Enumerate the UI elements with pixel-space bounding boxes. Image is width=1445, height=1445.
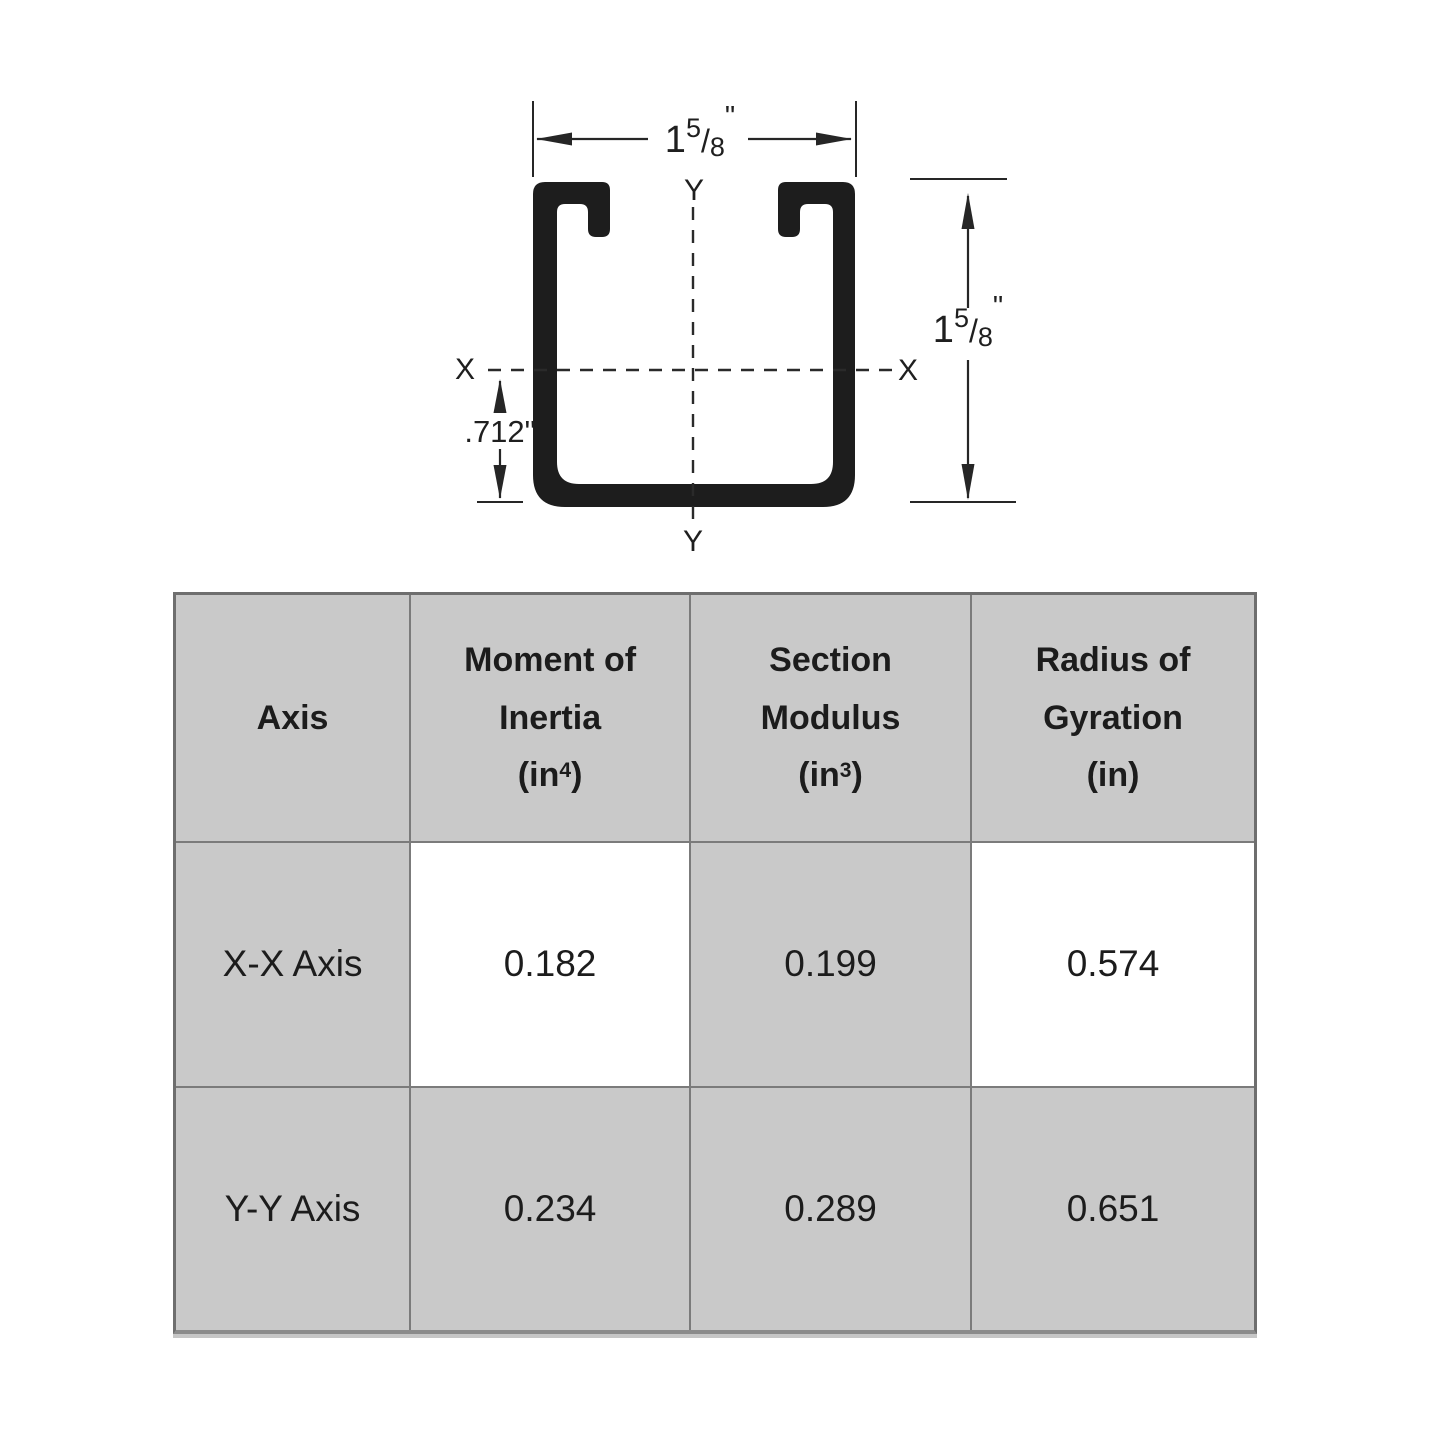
height-arrow-down-icon <box>962 464 975 500</box>
header-line: Gyration <box>1043 690 1183 747</box>
height-arrow-up-icon <box>962 193 975 229</box>
header-unit: (in) <box>1087 747 1140 804</box>
unit-base: (in <box>518 756 560 794</box>
dimension-lines <box>477 101 1016 502</box>
unit-base: (in <box>798 756 840 794</box>
cell-yy-section-modulus: 0.289 <box>691 1088 972 1330</box>
y-axis-label-bottom: Y <box>683 525 703 558</box>
x-axis-label-left: X <box>455 353 475 386</box>
cell-xx-radius-of-gyration: 0.574 <box>972 843 1254 1087</box>
x-axis-label-right: X <box>898 354 918 387</box>
cell-yy-moment-of-inertia: 0.234 <box>411 1088 691 1330</box>
width-arrow-left-icon <box>536 133 572 146</box>
header-axis: Axis <box>176 595 411 843</box>
section-properties-table: Axis Moment of Inertia (in4) Section Mod… <box>173 592 1257 1334</box>
header-unit: (in3) <box>798 747 863 804</box>
unit-base: (in <box>1087 756 1129 794</box>
centroid-arrow-down-icon <box>494 465 507 499</box>
unit-superscript: 4 <box>559 759 571 782</box>
unit-close: ) <box>852 756 863 794</box>
width-dimension-label: 15/8" <box>665 101 735 162</box>
header-section-modulus: Section Modulus (in3) <box>691 595 972 843</box>
cell-xx-section-modulus: 0.199 <box>691 843 972 1087</box>
header-radius-of-gyration: Radius of Gyration (in) <box>972 595 1254 843</box>
header-moment-of-inertia: Moment of Inertia (in4) <box>411 595 691 843</box>
unit-close: ) <box>571 756 582 794</box>
cell-yy-radius-of-gyration: 0.651 <box>972 1088 1254 1330</box>
cell-xx-axis-label: X-X Axis <box>176 843 411 1087</box>
y-axis-label-top: Y <box>684 174 704 207</box>
unit-superscript: 3 <box>840 759 852 782</box>
centroid-arrow-up-icon <box>494 379 507 413</box>
page: 15/8" 15/8" .712" X X Y Y Axis Moment of… <box>0 0 1445 1445</box>
header-line: Modulus <box>761 690 901 747</box>
header-unit: (in4) <box>518 747 583 804</box>
header-line: Inertia <box>499 690 601 747</box>
cell-xx-moment-of-inertia: 0.182 <box>411 843 691 1087</box>
header-line: Moment of <box>464 632 636 689</box>
unit-close: ) <box>1128 756 1139 794</box>
header-line: Radius of <box>1036 632 1191 689</box>
header-axis-label: Axis <box>257 690 329 747</box>
cell-yy-axis-label: Y-Y Axis <box>176 1088 411 1330</box>
centroid-dimension-label: .712" <box>464 414 535 449</box>
header-line: Section <box>769 632 892 689</box>
width-arrow-right-icon <box>816 133 852 146</box>
channel-cross-section-figure: 15/8" 15/8" .712" X X Y Y <box>0 0 1445 585</box>
